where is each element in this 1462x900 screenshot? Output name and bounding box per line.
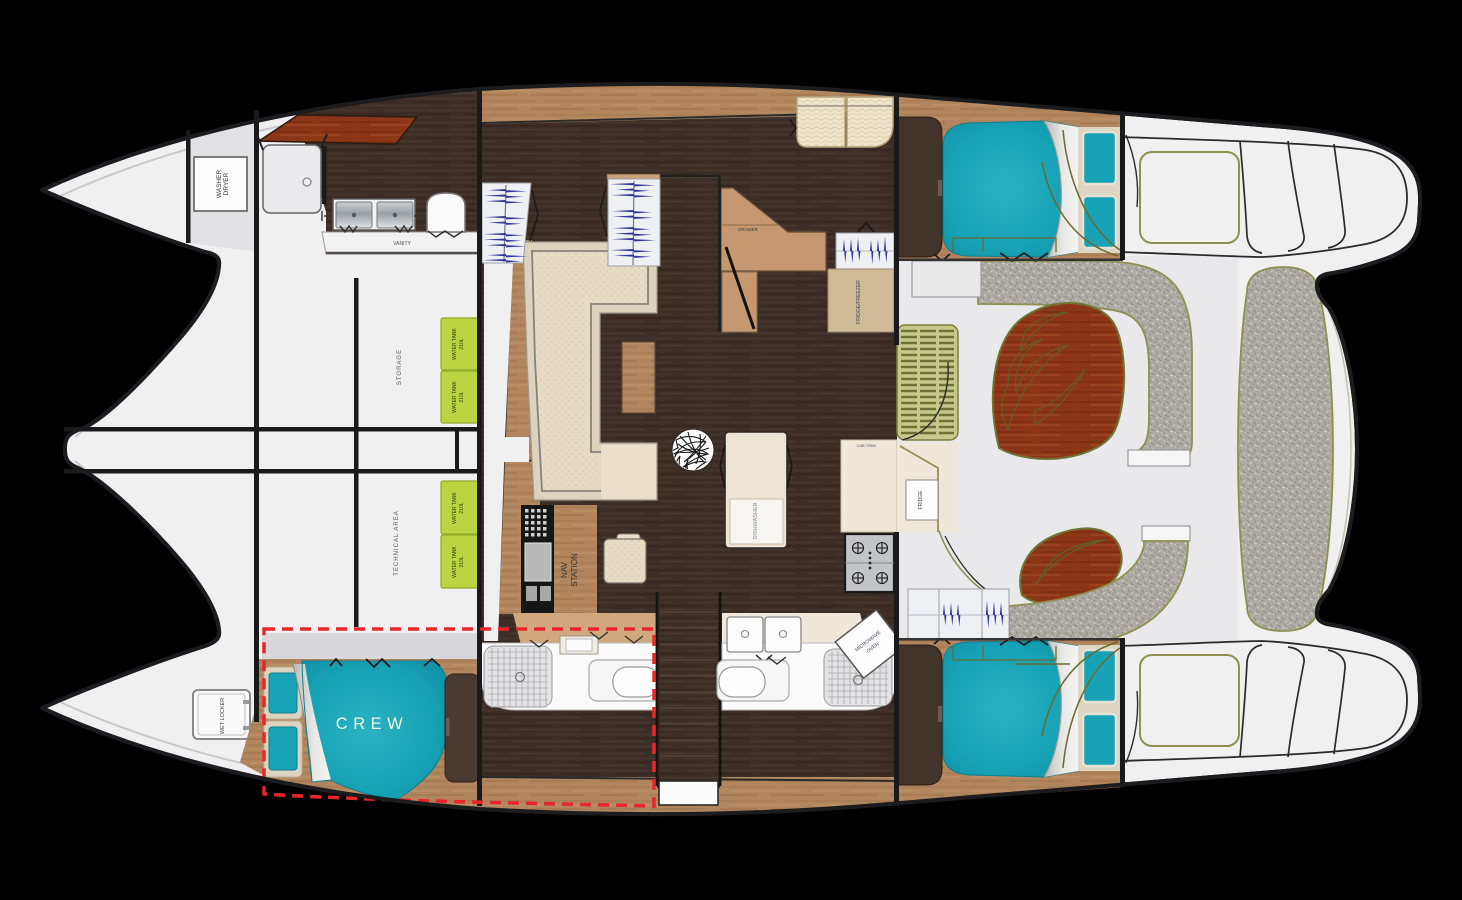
svg-text:NAV: NAV — [560, 561, 569, 578]
svg-text:210L: 210L — [459, 556, 465, 567]
svg-text:WATER TANK: WATER TANK — [452, 380, 458, 412]
svg-text:FRIDGE: FRIDGE — [918, 490, 924, 510]
svg-text:DRYER: DRYER — [223, 172, 230, 195]
svg-text:FRIDGE/FREEZER: FRIDGE/FREEZER — [856, 280, 862, 324]
svg-text:210L: 210L — [459, 338, 465, 349]
svg-text:CAB.TRIM: CAB.TRIM — [856, 443, 875, 448]
svg-text:WATER TANK: WATER TANK — [452, 327, 458, 359]
svg-text:WET LOCKER: WET LOCKER — [220, 698, 226, 734]
svg-text:210L: 210L — [459, 391, 465, 402]
svg-text:WATER TANK: WATER TANK — [452, 491, 458, 523]
svg-text:STORAGE: STORAGE — [397, 349, 403, 385]
svg-text:STATION: STATION — [570, 553, 579, 587]
svg-text:WASHER: WASHER — [216, 170, 223, 199]
svg-text:TECHNICAL AREA: TECHNICAL AREA — [394, 510, 400, 575]
svg-text:DISHWASHER: DISHWASHER — [753, 502, 759, 539]
svg-text:OVEN: OVEN — [836, 557, 841, 570]
svg-text:WATER TANK: WATER TANK — [452, 545, 458, 577]
svg-text:CREW: CREW — [336, 715, 408, 733]
svg-text:DRAWERS: DRAWERS — [811, 606, 834, 611]
svg-text:210L: 210L — [459, 502, 465, 513]
svg-text:VANITY: VANITY — [393, 241, 411, 247]
svg-text:DRAWERS: DRAWERS — [611, 606, 634, 611]
svg-text:DRAWER: DRAWER — [738, 227, 759, 232]
